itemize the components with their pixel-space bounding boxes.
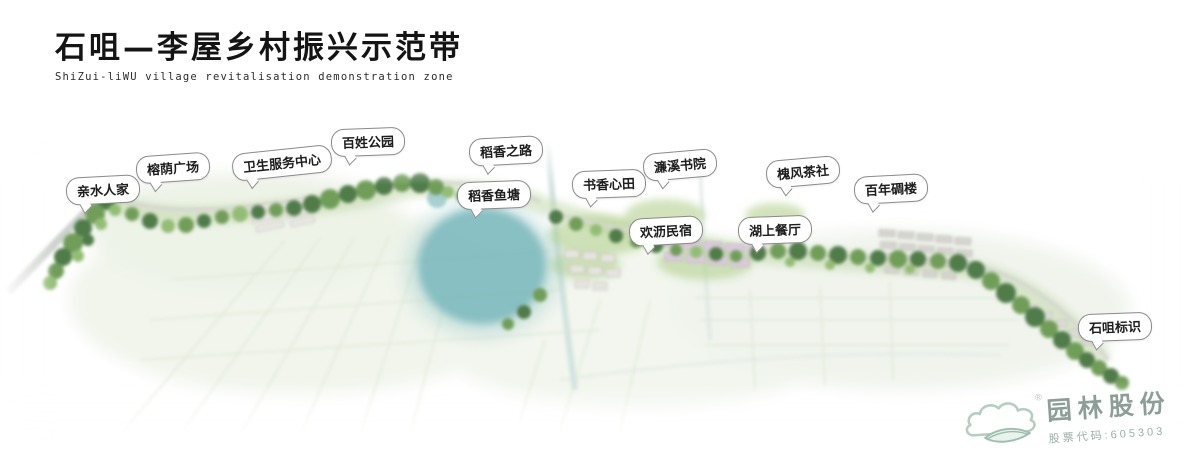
callout-qinshui-renjia: 亲水人家 xyxy=(65,174,140,206)
header: 石咀—李屋乡村振兴示范带 ShiZui-liWU village revital… xyxy=(55,22,463,83)
callout-century-watchtower: 百年碉楼 xyxy=(853,173,928,205)
logo-text: 园林股份 股票代码:605303 xyxy=(1045,383,1173,447)
callout-label: 湖上餐厅 xyxy=(749,222,802,239)
callout-label: 稻香之路 xyxy=(480,143,533,161)
callout-lake-restaurant: 湖上餐厅 xyxy=(738,215,813,246)
callout-label: 百姓公园 xyxy=(342,134,395,151)
callout-label: 槐风茶社 xyxy=(776,163,829,182)
callout-label: 亲水人家 xyxy=(77,182,130,200)
cloud-leaf-icon: ® xyxy=(960,394,1041,451)
callout-label: 濂溪书院 xyxy=(653,156,706,175)
callout-label: 欢沥民宿 xyxy=(640,223,693,241)
callout-label: 百年碉楼 xyxy=(865,181,918,199)
callout-label: 石咀标识 xyxy=(1089,319,1142,336)
callout-label: 卫生服务中心 xyxy=(242,152,321,175)
callout-rongyin-plaza: 榕荫广场 xyxy=(135,151,211,184)
page-title: 石咀—李屋乡村振兴示范带 xyxy=(55,22,463,67)
callout-daoxiang-fishpond: 稻香鱼塘 xyxy=(457,180,532,211)
callout-label: 书香心田 xyxy=(583,176,636,193)
callout-daoxiang-road: 稻香之路 xyxy=(468,135,543,167)
logo-company-name: 园林股份 xyxy=(1045,383,1171,428)
callout-huanli-homestay: 欢沥民宿 xyxy=(628,215,703,247)
registered-mark: ® xyxy=(1035,392,1042,402)
callout-baixing-park: 百姓公园 xyxy=(331,127,406,158)
callout-label: 稻香鱼塘 xyxy=(468,187,521,204)
callout-label: 榕荫广场 xyxy=(147,159,200,178)
page-subtitle: ShiZui-liWU village revitalisation demon… xyxy=(55,71,463,83)
callout-shuxiang-xintian: 书香心田 xyxy=(572,169,647,200)
poster: 石咀—李屋乡村振兴示范带 ShiZui-liWU village revital… xyxy=(0,0,1181,442)
callout-shizui-landmark: 石咀标识 xyxy=(1078,312,1153,343)
